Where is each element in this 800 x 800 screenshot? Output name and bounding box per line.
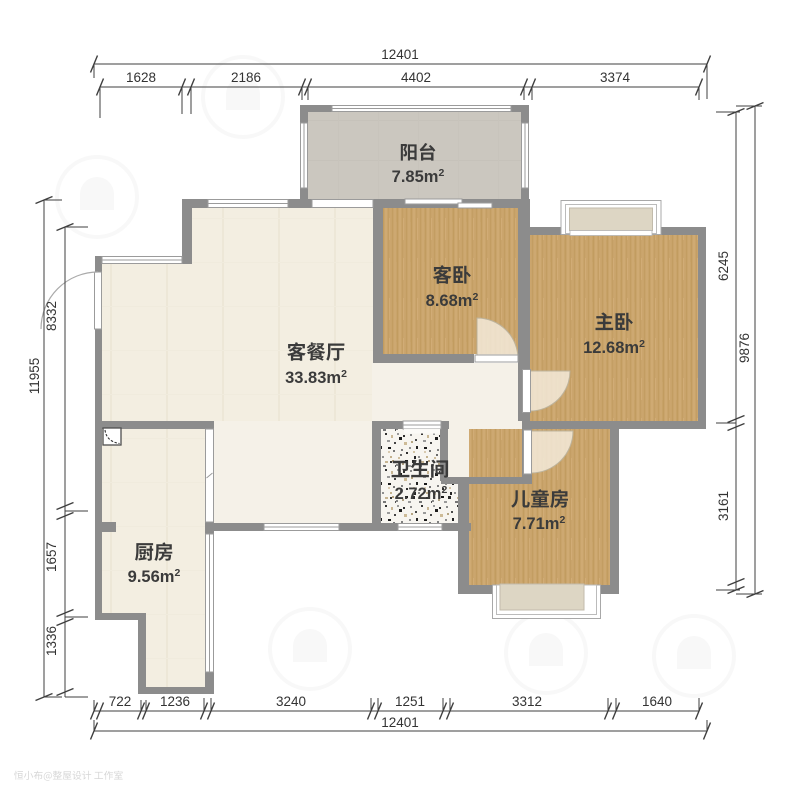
svg-text:722: 722 <box>109 694 132 709</box>
svg-text:33.83m2: 33.83m2 <box>285 368 347 387</box>
svg-text:11955: 11955 <box>27 358 42 395</box>
svg-text:4402: 4402 <box>401 70 431 85</box>
svg-text:3312: 3312 <box>512 694 542 709</box>
svg-text:8.68m2: 8.68m2 <box>426 291 479 310</box>
svg-text:3161: 3161 <box>716 491 731 521</box>
svg-text:1657: 1657 <box>44 542 59 572</box>
svg-text:1236: 1236 <box>160 694 190 709</box>
svg-text:8332: 8332 <box>44 301 59 331</box>
svg-text:1336: 1336 <box>44 626 59 656</box>
svg-text:3240: 3240 <box>276 694 306 709</box>
svg-text:9876: 9876 <box>737 333 752 363</box>
svg-text:6245: 6245 <box>716 251 731 281</box>
svg-text:3374: 3374 <box>600 70 631 85</box>
svg-text:12401: 12401 <box>381 715 419 730</box>
svg-text:1251: 1251 <box>395 694 425 709</box>
svg-text:7.85m2: 7.85m2 <box>392 167 445 186</box>
svg-text:1640: 1640 <box>642 694 672 709</box>
svg-text:2.72m2: 2.72m2 <box>395 484 448 503</box>
svg-text:12401: 12401 <box>381 47 419 62</box>
svg-text:2186: 2186 <box>231 70 261 85</box>
svg-text:7.71m2: 7.71m2 <box>513 514 566 533</box>
svg-text:9.56m2: 9.56m2 <box>128 567 181 586</box>
svg-text:1628: 1628 <box>126 70 156 85</box>
svg-text:12.68m2: 12.68m2 <box>583 338 645 357</box>
